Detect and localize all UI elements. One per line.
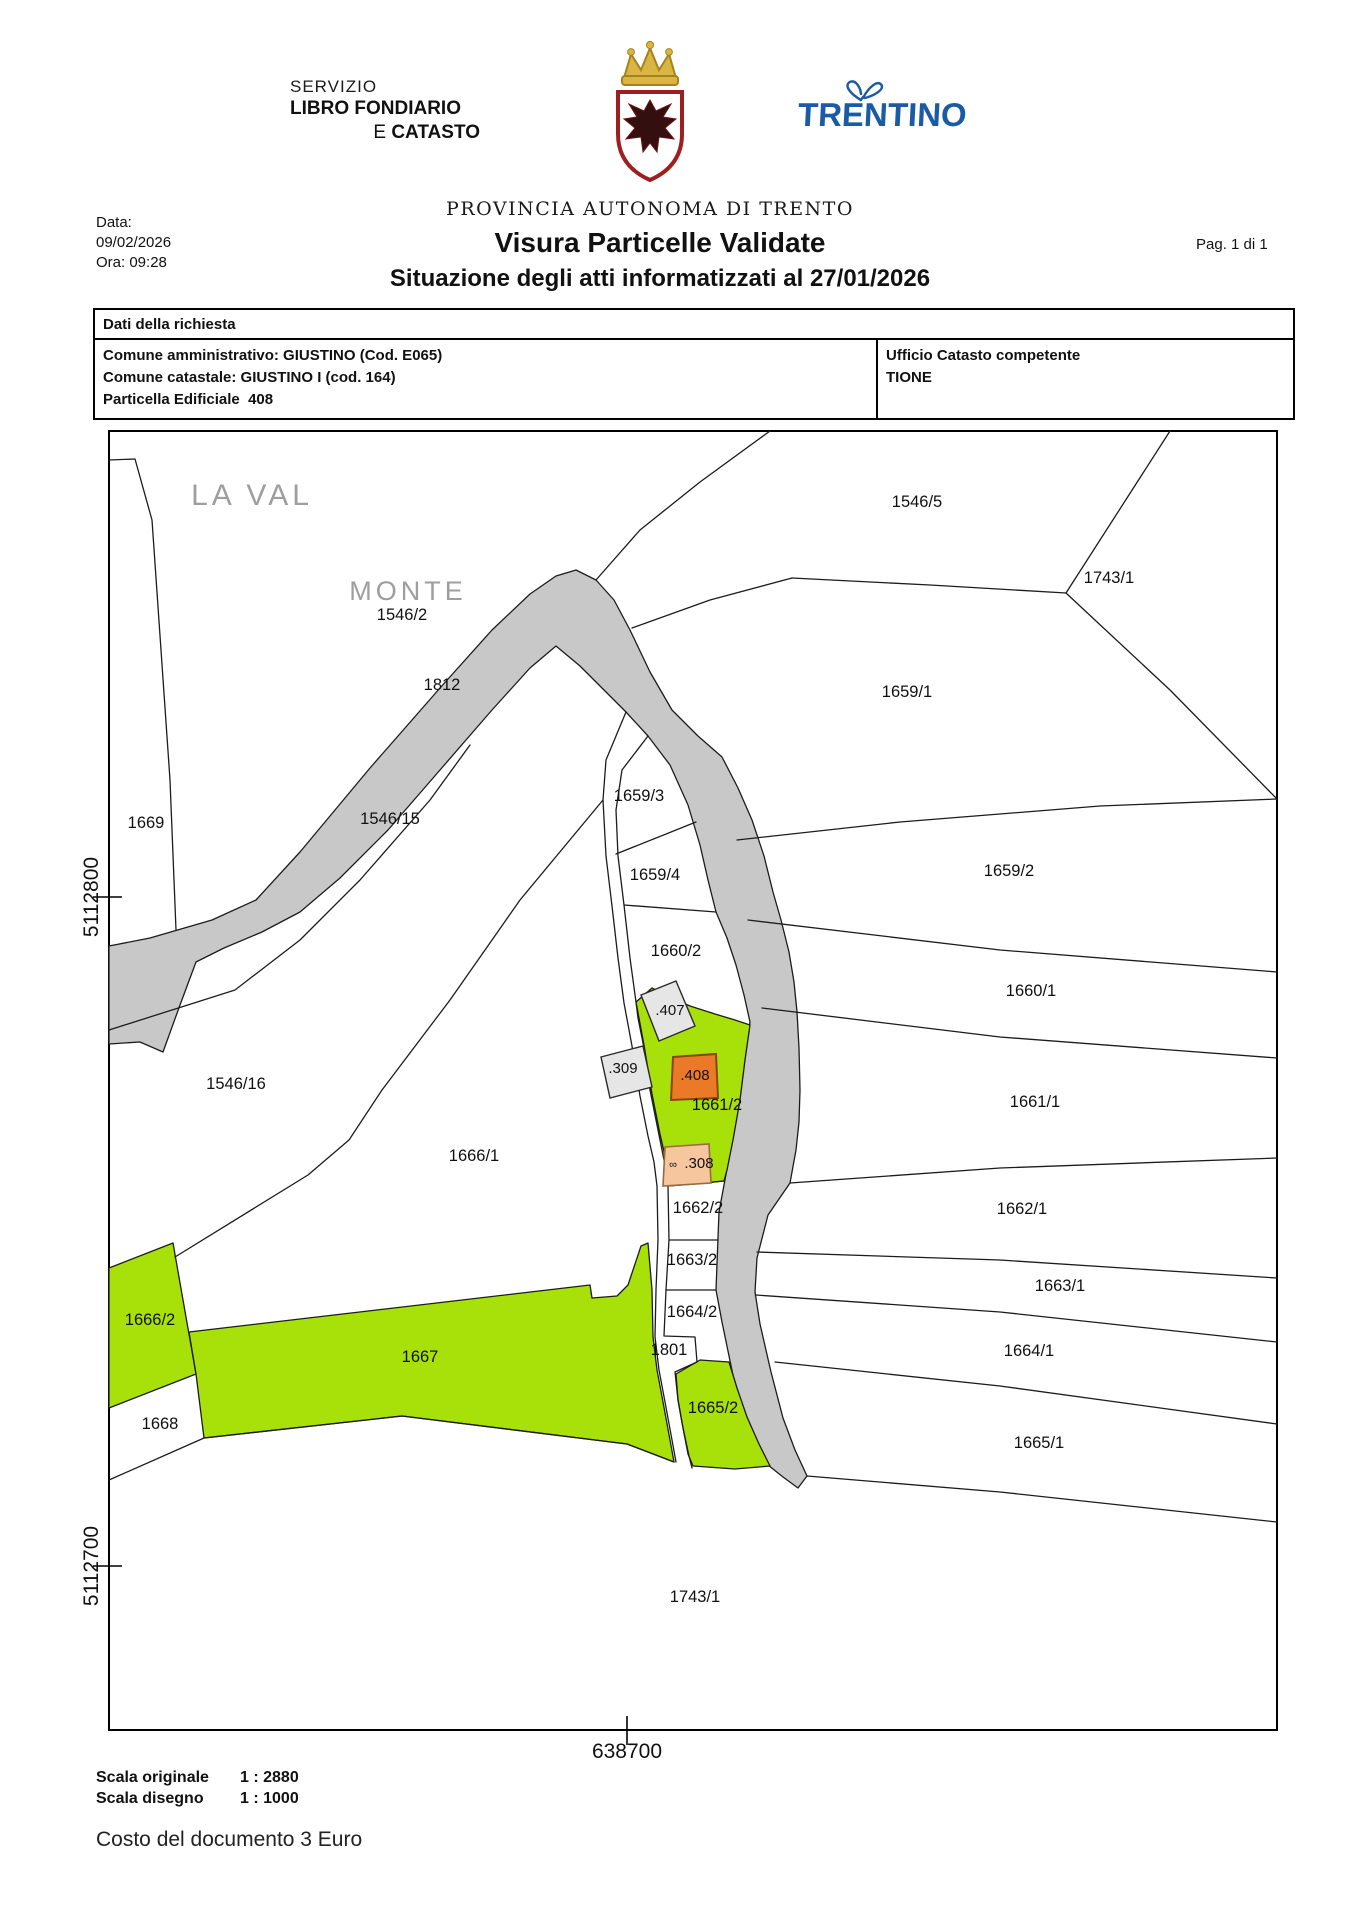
parcel-label-1546-16: 1546/16 bbox=[206, 1075, 266, 1093]
parcel-label-1663-2: 1663/2 bbox=[667, 1251, 717, 1269]
parcel-label-1546-5: 1546/5 bbox=[892, 493, 942, 511]
parcel-label-1666-1: 1666/1 bbox=[449, 1147, 499, 1165]
parcel-label-1665-2: 1665/2 bbox=[688, 1399, 738, 1417]
parcel-label-1661-2: 1661/2 bbox=[692, 1096, 742, 1114]
parcel-label-1664-1: 1664/1 bbox=[1004, 1342, 1054, 1360]
parcel-label-1812: 1812 bbox=[424, 676, 461, 694]
parcel-label-1662-2: 1662/2 bbox=[673, 1199, 723, 1217]
scale-original-row: Scala originale 1 : 2880 bbox=[96, 1769, 209, 1787]
parcel-label-1659-2: 1659/2 bbox=[984, 862, 1034, 880]
scale-drawing-label: Scala disegno bbox=[96, 1790, 204, 1807]
parcel-label-1662-1: 1662/1 bbox=[997, 1200, 1047, 1218]
parcel-label-1663-1: 1663/1 bbox=[1035, 1277, 1085, 1295]
parcel-label-1666-2: 1666/2 bbox=[125, 1311, 175, 1329]
parcel-label-1659-4: 1659/4 bbox=[630, 866, 680, 884]
parcel-label-1669: 1669 bbox=[128, 814, 165, 832]
parcel-label-1667: 1667 bbox=[402, 1348, 439, 1366]
axis-label-5112800: 5112800 bbox=[80, 857, 103, 937]
parcel-label-1661-1: 1661/1 bbox=[1010, 1093, 1060, 1111]
document-cost: Costo del documento 3 Euro bbox=[96, 1828, 362, 1852]
parcel-label-1664-2: 1664/2 bbox=[667, 1303, 717, 1321]
toponym-label: LA VAL bbox=[191, 479, 313, 512]
parcel-label-1546-15: 1546/15 bbox=[360, 810, 420, 828]
parcel-label-1659-1: 1659/1 bbox=[882, 683, 932, 701]
scale-drawing-value: 1 : 1000 bbox=[240, 1790, 299, 1808]
visura-page: { "header": { "service_line1": "SERVIZIO… bbox=[0, 0, 1358, 1920]
scale-original-value: 1 : 2880 bbox=[240, 1769, 299, 1787]
toponym-label: MONTE bbox=[349, 576, 467, 606]
parcel-label-1801: 1801 bbox=[651, 1341, 688, 1359]
cadastral-map: LA VALMONTE1546/21546/51743/11659/118121… bbox=[0, 0, 1358, 1920]
parcel-label-1743-1: 1743/1 bbox=[670, 1588, 720, 1606]
scale-original-label: Scala originale bbox=[96, 1769, 209, 1786]
parcel-label--309: .309 bbox=[608, 1060, 637, 1077]
parcel-label--308: .308 bbox=[684, 1155, 713, 1172]
scale-drawing-row: Scala disegno 1 : 1000 bbox=[96, 1790, 204, 1808]
axis-label-5112700: 5112700 bbox=[80, 1526, 103, 1606]
parcel-label-1743-1: 1743/1 bbox=[1084, 569, 1134, 587]
axis-label-638700: 638700 bbox=[592, 1740, 662, 1763]
parcel-label--408: .408 bbox=[680, 1067, 709, 1084]
parcel-label-1546-2: 1546/2 bbox=[377, 606, 427, 624]
building-308-symbol: ∞ bbox=[669, 1159, 677, 1171]
parcel-label-1668: 1668 bbox=[142, 1415, 179, 1433]
parcel-label-1660-1: 1660/1 bbox=[1006, 982, 1056, 1000]
parcel-label-1665-1: 1665/1 bbox=[1014, 1434, 1064, 1452]
parcel-label-1659-3: 1659/3 bbox=[614, 787, 664, 805]
parcel-label-1660-2: 1660/2 bbox=[651, 942, 701, 960]
parcel-label--407: .407 bbox=[655, 1002, 684, 1019]
